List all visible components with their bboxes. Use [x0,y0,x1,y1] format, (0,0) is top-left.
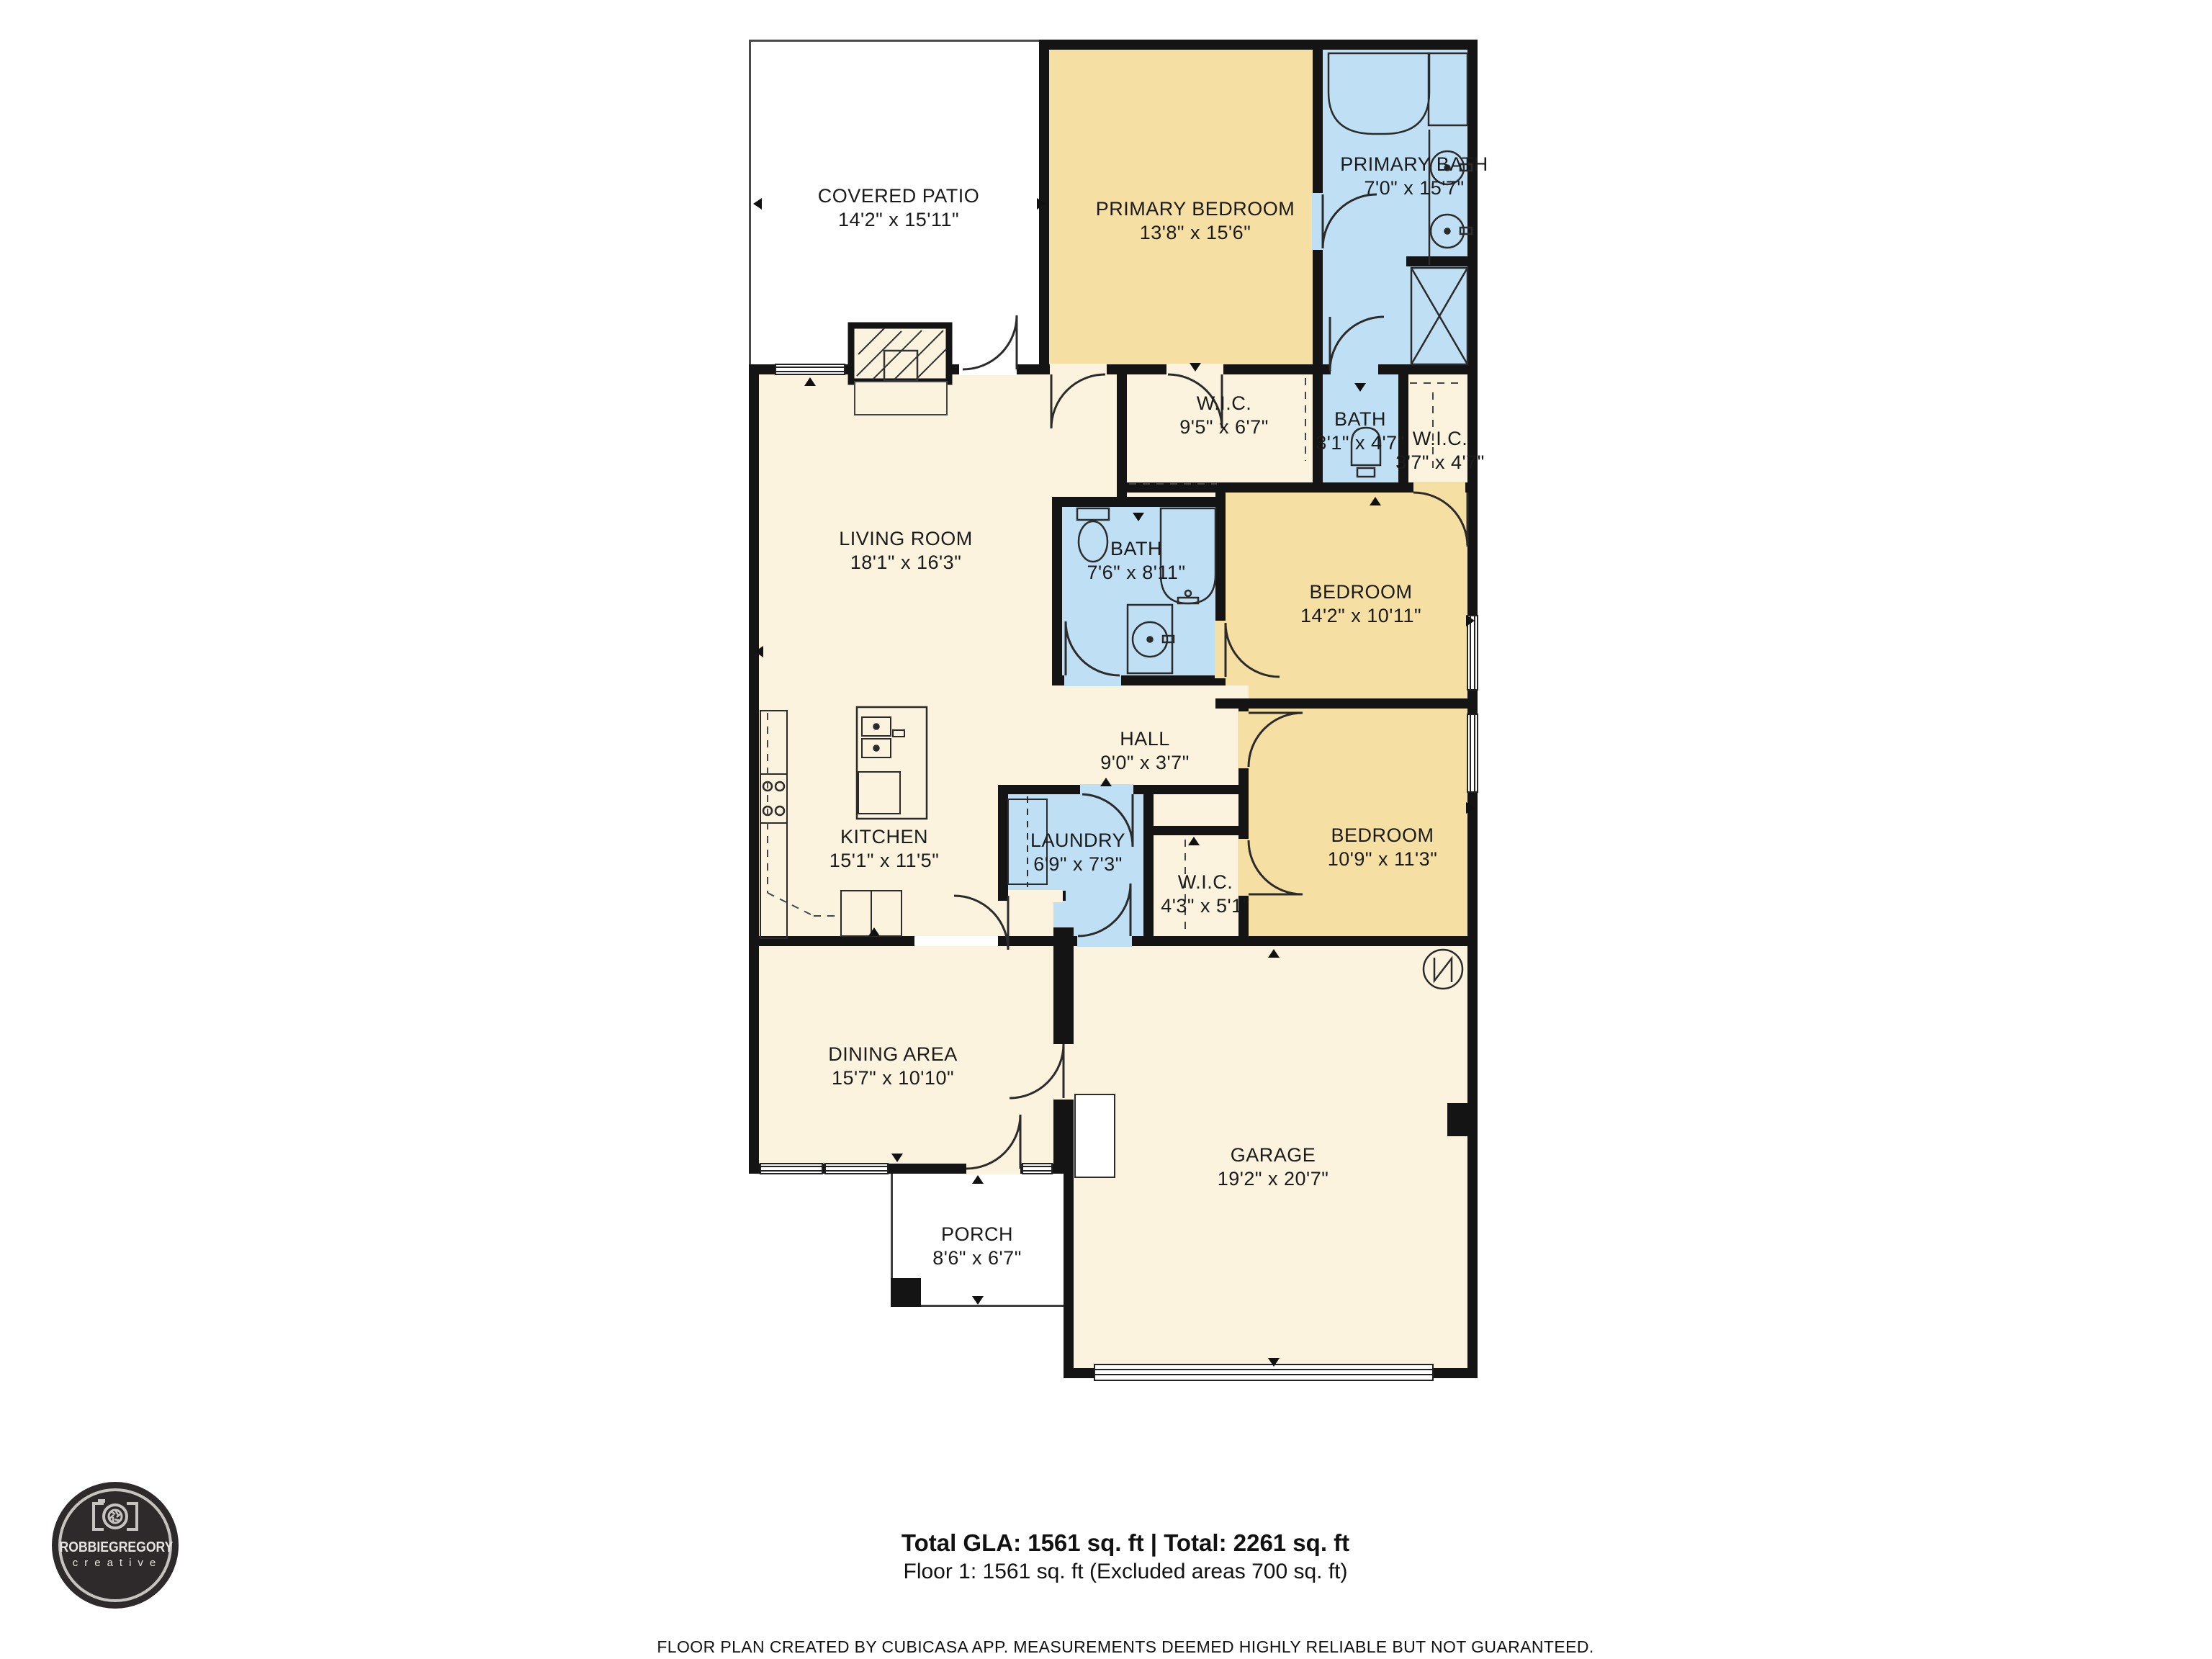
room-dims: 10'9" x 11'3" [1328,848,1438,871]
room-label-bedroom-2: BEDROOM 10'9" x 11'3" [1328,824,1438,871]
toilet-tank-icon [1077,508,1109,520]
bathtub-icon [1328,53,1429,134]
room-label-bath-main: BATH 7'6" x 8'11" [1087,537,1185,585]
room-dims: 18'1" x 16'3" [839,551,973,575]
room-label-covered-patio: COVERED PATIO 14'2" x 15'11" [818,184,980,232]
fireplace [851,325,949,415]
door-gap [1077,935,1132,947]
room-name: BEDROOM [1300,580,1421,604]
door-gap [1008,890,1063,902]
door-gap [1238,711,1249,768]
room-label-wic-small: W.I.C. 3'7" x 4'7" [1395,427,1485,475]
room-name: LAUNDRY [1030,829,1125,853]
room-label-primary-bath: PRIMARY BATH 7'0" x 15'7" [1340,153,1488,200]
counter-icon [760,711,787,938]
door-arc [1226,623,1280,677]
door-arc [1078,884,1130,936]
kitchen-island-icon [857,707,927,819]
room-label-wic-bedroom2: W.I.C. 4'3" x 5'1" [1161,871,1250,918]
door-arc [1249,840,1303,894]
window [775,364,845,374]
door-arc [1249,713,1303,767]
room-name: BEDROOM [1328,824,1438,848]
room-label-kitchen: KITCHEN 15'1" x 11'5" [829,825,940,873]
room-dims: 19'2" x 20'7" [1218,1167,1329,1191]
floor-area-line: Floor 1: 1561 sq. ft (Excluded areas 700… [904,1560,1348,1584]
total-area-line: Total GLA: 1561 sq. ft | Total: 2261 sq.… [902,1529,1349,1557]
room-label-primary-bedroom: PRIMARY BEDROOM 13'8" x 15'6" [1096,197,1295,245]
door-gap [1413,482,1465,493]
door-arc [966,1115,1020,1169]
room-label-laundry: LAUNDRY 6'9" x 7'3" [1030,829,1125,876]
door-arc [1051,374,1105,428]
room-dims: 13'8" x 15'6" [1096,221,1295,245]
water-heater-icon [1075,1094,1115,1177]
room-label-dining-area: DINING AREA 15'7" x 10'10" [828,1043,958,1090]
room-name: W.I.C. [1179,392,1269,415]
door-swings [954,194,1467,1169]
porch-post [891,1278,921,1307]
room-dims: 8'6" x 6'7" [932,1246,1022,1270]
door-arc [963,315,1017,369]
primary-bath-fixtures [1328,53,1472,364]
floor-plan-page: COVERED PATIO 14'2" x 15'11" PRIMARY BED… [0,0,2212,1659]
room-dims: 15'7" x 10'10" [828,1066,958,1090]
room-name: PRIMARY BEDROOM [1096,197,1295,221]
room-name: W.I.C. [1395,427,1485,451]
door-openings [959,193,1465,1174]
room-name: BATH [1087,537,1185,561]
room-name: BATH [1316,408,1405,431]
door-gap [1064,675,1121,686]
main-bath-fixtures [1077,508,1215,673]
room-dims: 14'2" x 15'11" [818,208,980,232]
room-dims: 14'2" x 10'11" [1300,604,1421,628]
door-gap [1331,364,1378,375]
room-label-wic-primary: W.I.C. 9'5" x 6'7" [1179,392,1269,439]
room-dims: 15'1" x 11'5" [829,849,940,873]
hearth [855,382,947,415]
room-dims: 3'1" x 4'7" [1316,431,1405,455]
window [1467,714,1478,792]
room-name: PRIMARY BATH [1340,153,1488,176]
room-name: DINING AREA [828,1043,958,1066]
brand-logo: ROBBIEGREGORY creative [52,1482,179,1609]
window [1022,1164,1052,1174]
window [825,1164,888,1174]
room-dims: 9'5" x 6'7" [1179,415,1269,439]
room-dims: 7'0" x 15'7" [1340,176,1488,200]
room-name: LIVING ROOM [839,527,973,551]
garage-door [1094,1364,1433,1380]
room-name: KITCHEN [829,825,940,849]
camera-icon [89,1498,141,1535]
kitchen-fixtures [760,707,927,938]
dishwasher-icon [858,772,900,814]
room-name: HALL [1100,727,1190,751]
door-arc [1323,194,1377,248]
door-arc [1413,493,1467,547]
door-arc [954,896,1008,950]
room-label-porch: PORCH 8'6" x 6'7" [932,1223,1022,1270]
window [1467,616,1478,690]
room-label-hall: HALL 9'0" x 3'7" [1100,727,1190,775]
logo-brand-text: ROBBIEGREGORY [60,1539,171,1556]
disclaimer-line: FLOOR PLAN CREATED BY CUBICASA APP. MEAS… [657,1637,1593,1657]
door-gap [1050,364,1107,375]
room-dims: 4'3" x 5'1" [1161,894,1250,918]
room-name: PORCH [932,1223,1022,1246]
logo-sub-text: creative [56,1557,179,1569]
room-dims: 9'0" x 3'7" [1100,751,1190,775]
room-label-bedroom-1: BEDROOM 14'2" x 10'11" [1300,580,1421,628]
room-name: W.I.C. [1161,871,1250,894]
room-name: GARAGE [1218,1143,1329,1167]
window [760,1164,822,1174]
room-dims: 7'6" x 8'11" [1087,561,1185,585]
room-label-garage: GARAGE 19'2" x 20'7" [1218,1143,1329,1191]
door-arc [1066,621,1120,675]
room-dims: 6'9" x 7'3" [1030,853,1125,876]
bath-cabinet-icon [1429,53,1467,125]
room-label-living-room: LIVING ROOM 18'1" x 16'3" [839,527,973,575]
room-dims: 3'7" x 4'7" [1395,451,1485,475]
door-arc [1330,317,1384,371]
room-label-bath-small: BATH 3'1" x 4'7" [1316,408,1405,455]
room-name: COVERED PATIO [818,184,980,208]
stove-icon [760,774,787,823]
